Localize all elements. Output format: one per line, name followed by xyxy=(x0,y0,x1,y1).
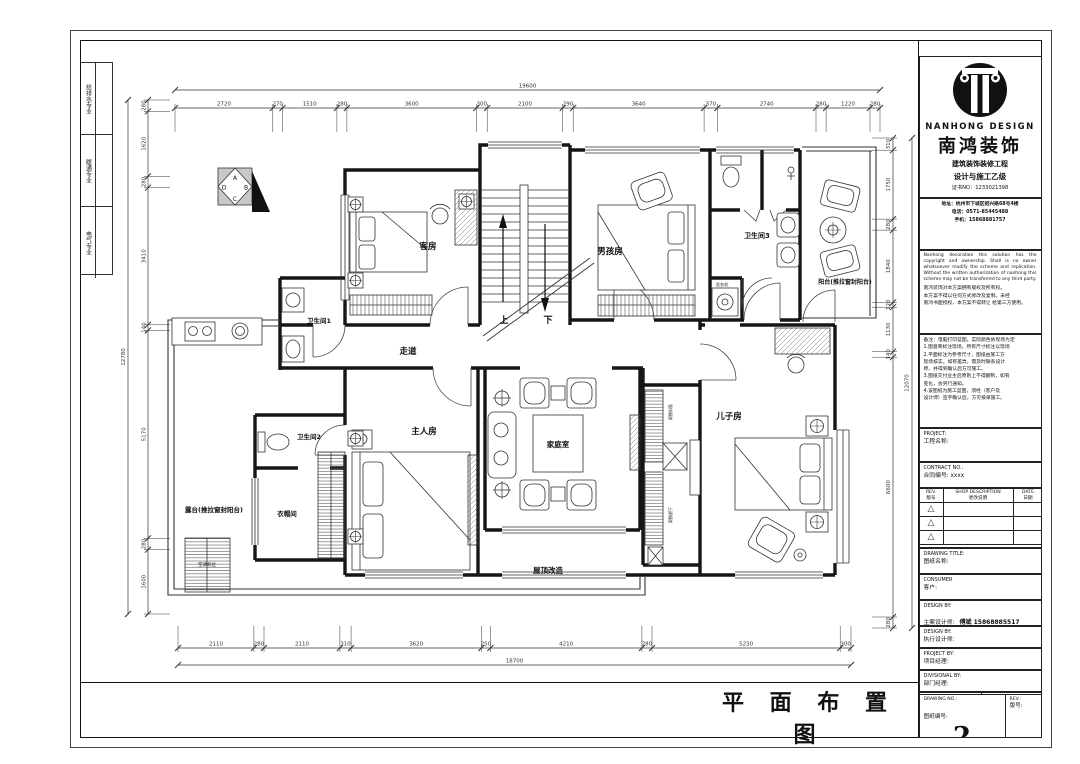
copyright-panel: Nanhong decoration this solution has the… xyxy=(919,250,1042,334)
contact-tel: 电话：0571-85445488 xyxy=(924,209,1037,217)
exec-designer-panel: DESIGN BY: 执行设计师: xyxy=(919,626,1042,648)
drawing-no-label-en: DRAWING NO.: xyxy=(924,697,1001,703)
brand-name-cn: 南鸿装饰 xyxy=(938,132,1022,158)
discipline-cell: 给排水专业 xyxy=(80,63,112,135)
division-manager-label-en: DIVISIONAL BY: xyxy=(924,673,1037,679)
discipline-sign-area xyxy=(95,135,112,206)
contract-label-en: CONTRACT NO.: xyxy=(924,465,1037,471)
copyright-text-en: Nanhong decoration this solution has the… xyxy=(924,253,1037,283)
discipline-sign-area xyxy=(95,63,112,134)
contact-panel: 地址：杭州市下城区绍兴路68号4楼 电话：0571-85445488 手机：15… xyxy=(919,198,1042,250)
discipline-strip: 给排水专业 暖通专业 电气专业 xyxy=(80,62,113,275)
drawing-main-title: 平 面 布 置 图 xyxy=(700,685,918,749)
project-manager-label-en: PROJECT BY: xyxy=(924,651,1037,657)
rev-col2-en: SHOP DESCRIPTION xyxy=(955,490,1000,495)
discipline-label-plumbing: 给排水专业 xyxy=(81,63,95,134)
rev-col1-cn: 版号 xyxy=(926,496,935,501)
brand-cert-no: 证书NO：1233021398 xyxy=(952,184,1009,191)
copyright-cn-2: 本方案不得以任何方式修改及复制。未经 xyxy=(924,293,1037,300)
rev-col3-cn: 日期 xyxy=(1023,496,1032,501)
lead-designer-panel: DESIGN BY: 主案设计师: 傅斌 15868885517 xyxy=(919,600,1042,626)
drawing-sheet: A B C D 2720 270 1510 280 3600 300 2100 … xyxy=(0,0,1080,764)
note-line: 3.图纸交付业主后原则上不得翻制，如有 xyxy=(924,373,1037,380)
rev-col3-en: DATE xyxy=(1022,490,1034,495)
drawing-title-label-en: DRAWING TITLE: xyxy=(924,551,1037,557)
note-line: 设计师）签字确认后，方可按单施工。 xyxy=(924,395,1037,402)
contact-mobile: 手机：15868881757 xyxy=(924,217,1037,225)
note-line: 现场核实。如有差异，需及时联系设计 xyxy=(924,359,1037,366)
discipline-cell: 电气专业 xyxy=(80,207,112,278)
note-line: 1.图督商标注现场，所有尺寸标注以现场 xyxy=(924,344,1037,351)
drawing-number-panel: DRAWING NO.: 图纸编号: 2 REV.: 版号: xyxy=(919,694,1042,738)
notes-panel: 备注：电脑打印蓝图，实际颜色依现场为定 1.图督商标注现场，所有尺寸标注以现场 … xyxy=(919,334,1042,428)
project-manager-label-cn: 项目经理: xyxy=(924,659,1037,667)
discipline-sign-area xyxy=(95,207,112,278)
rev-label-cn: 版号: xyxy=(1010,703,1039,710)
division-manager-label-cn: 部门经理: xyxy=(924,681,1037,689)
brand-name-en: NANHONG DESIGN xyxy=(925,122,1034,132)
brand-subtitle-1: 建筑装饰装修工程 xyxy=(952,159,1008,169)
contract-label-cn: 合同编号: xxxx xyxy=(924,473,1037,481)
lead-designer-value: 傅斌 15868885517 xyxy=(960,619,1020,626)
contact-address: 地址：杭州市下城区绍兴路68号4楼 xyxy=(924,201,1037,209)
note-line: 变化，会另行通知。 xyxy=(924,381,1037,388)
drawing-number-value: 2 xyxy=(924,722,1001,738)
division-manager-panel: DIVISIONAL BY: 部门经理: xyxy=(919,670,1042,692)
consumer-label-cn: 客户: xyxy=(924,585,1037,593)
discipline-label-hvac: 暖通专业 xyxy=(81,135,95,206)
consumer-label-en: CONSUMER xyxy=(924,577,1037,583)
rev-col2-cn: 更改说明 xyxy=(969,496,987,501)
note-line: 4.该图纸为施工蓝图，须经（客户及 xyxy=(924,388,1037,395)
contract-panel: CONTRACT NO.: 合同编号: xxxx xyxy=(919,462,1042,488)
brand-subtitle-2: 设计与施工乙级 xyxy=(954,171,1007,182)
title-area-line xyxy=(80,682,918,683)
exec-designer-label-en: DESIGN BY: xyxy=(924,629,1037,635)
project-panel: PROJECT: 工程名称: xyxy=(919,428,1042,462)
logo-panel: NANHONG DESIGN 南鸿装饰 建筑装饰装修工程 设计与施工乙级 证书N… xyxy=(919,56,1042,198)
drawing-title-label-cn: 图纸名称: xyxy=(924,559,1037,567)
discipline-cell: 暖通专业 xyxy=(80,135,112,207)
note-line: 2.平面标注为参考尺寸，图纸由施工方 xyxy=(924,352,1037,359)
sheet-inner-border xyxy=(80,40,1042,738)
revision-triangle-icon: △ xyxy=(928,505,935,514)
drawing-no-label-cn: 图纸编号: xyxy=(924,714,948,721)
discipline-label-electrical: 电气专业 xyxy=(81,207,95,278)
note-line: 师，并得到确认后方可施工。 xyxy=(924,366,1037,373)
note-line: 备注：电脑打印蓝图，实际颜色依现场为定 xyxy=(924,337,1037,344)
consumer-panel: CONSUMER 客户: xyxy=(919,574,1042,600)
project-label-cn: 工程名称: xyxy=(924,439,1037,447)
copyright-cn-3: 南鸿书面授权，本方案不得转让 给第三方使用。 xyxy=(924,300,1037,307)
revision-table: REV. 版号 SHOP DESCRIPTION 更改说明 DATE 日期 △ … xyxy=(919,488,1042,548)
project-manager-panel: PROJECT BY: 项目经理: xyxy=(919,648,1042,670)
drawing-title-panel: DRAWING TITLE: 图纸名称: xyxy=(919,548,1042,574)
project-label-en: PROJECT: xyxy=(924,431,1037,437)
copyright-cn-1: 南鸿装饰对本方案拥有版权及所有权。 xyxy=(924,285,1037,292)
nanhong-logo-icon xyxy=(951,61,1009,119)
exec-designer-label-cn: 执行设计师: xyxy=(924,637,1037,645)
rev-col1-en: REV. xyxy=(926,490,936,495)
lead-designer-label-en: DESIGN BY: xyxy=(924,603,1037,609)
revision-triangle-icon: △ xyxy=(928,533,935,542)
revision-triangle-icon: △ xyxy=(928,519,935,528)
